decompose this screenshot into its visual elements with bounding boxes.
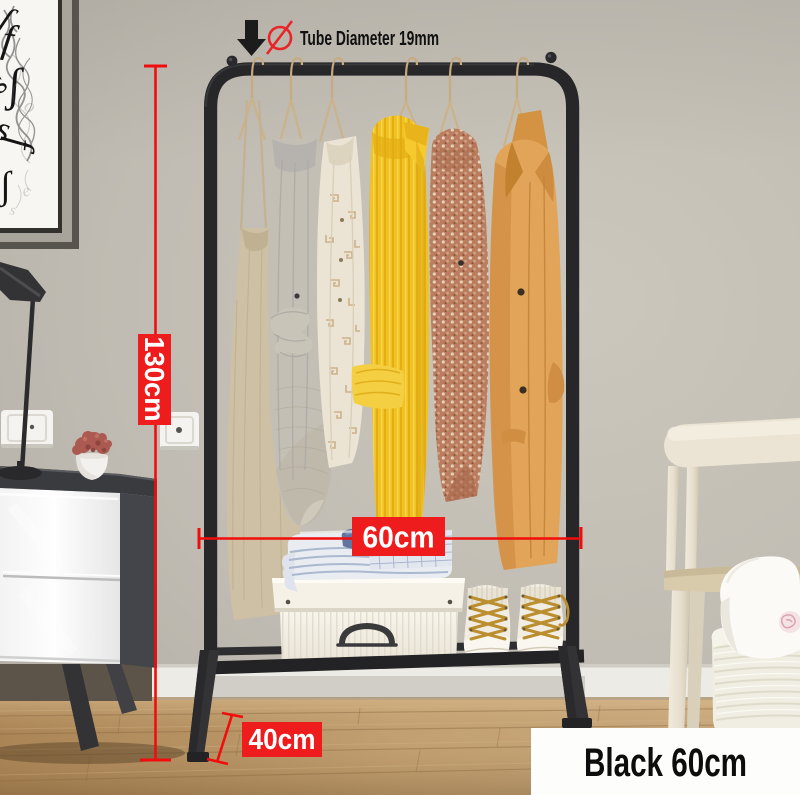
- svg-text:60cm: 60cm: [363, 520, 435, 555]
- svg-text:Tube Diameter 19mm: Tube Diameter 19mm: [300, 28, 439, 50]
- svg-text:40cm: 40cm: [249, 724, 316, 756]
- svg-text:Black 60cm: Black 60cm: [584, 741, 747, 785]
- svg-text:130cm: 130cm: [139, 337, 170, 422]
